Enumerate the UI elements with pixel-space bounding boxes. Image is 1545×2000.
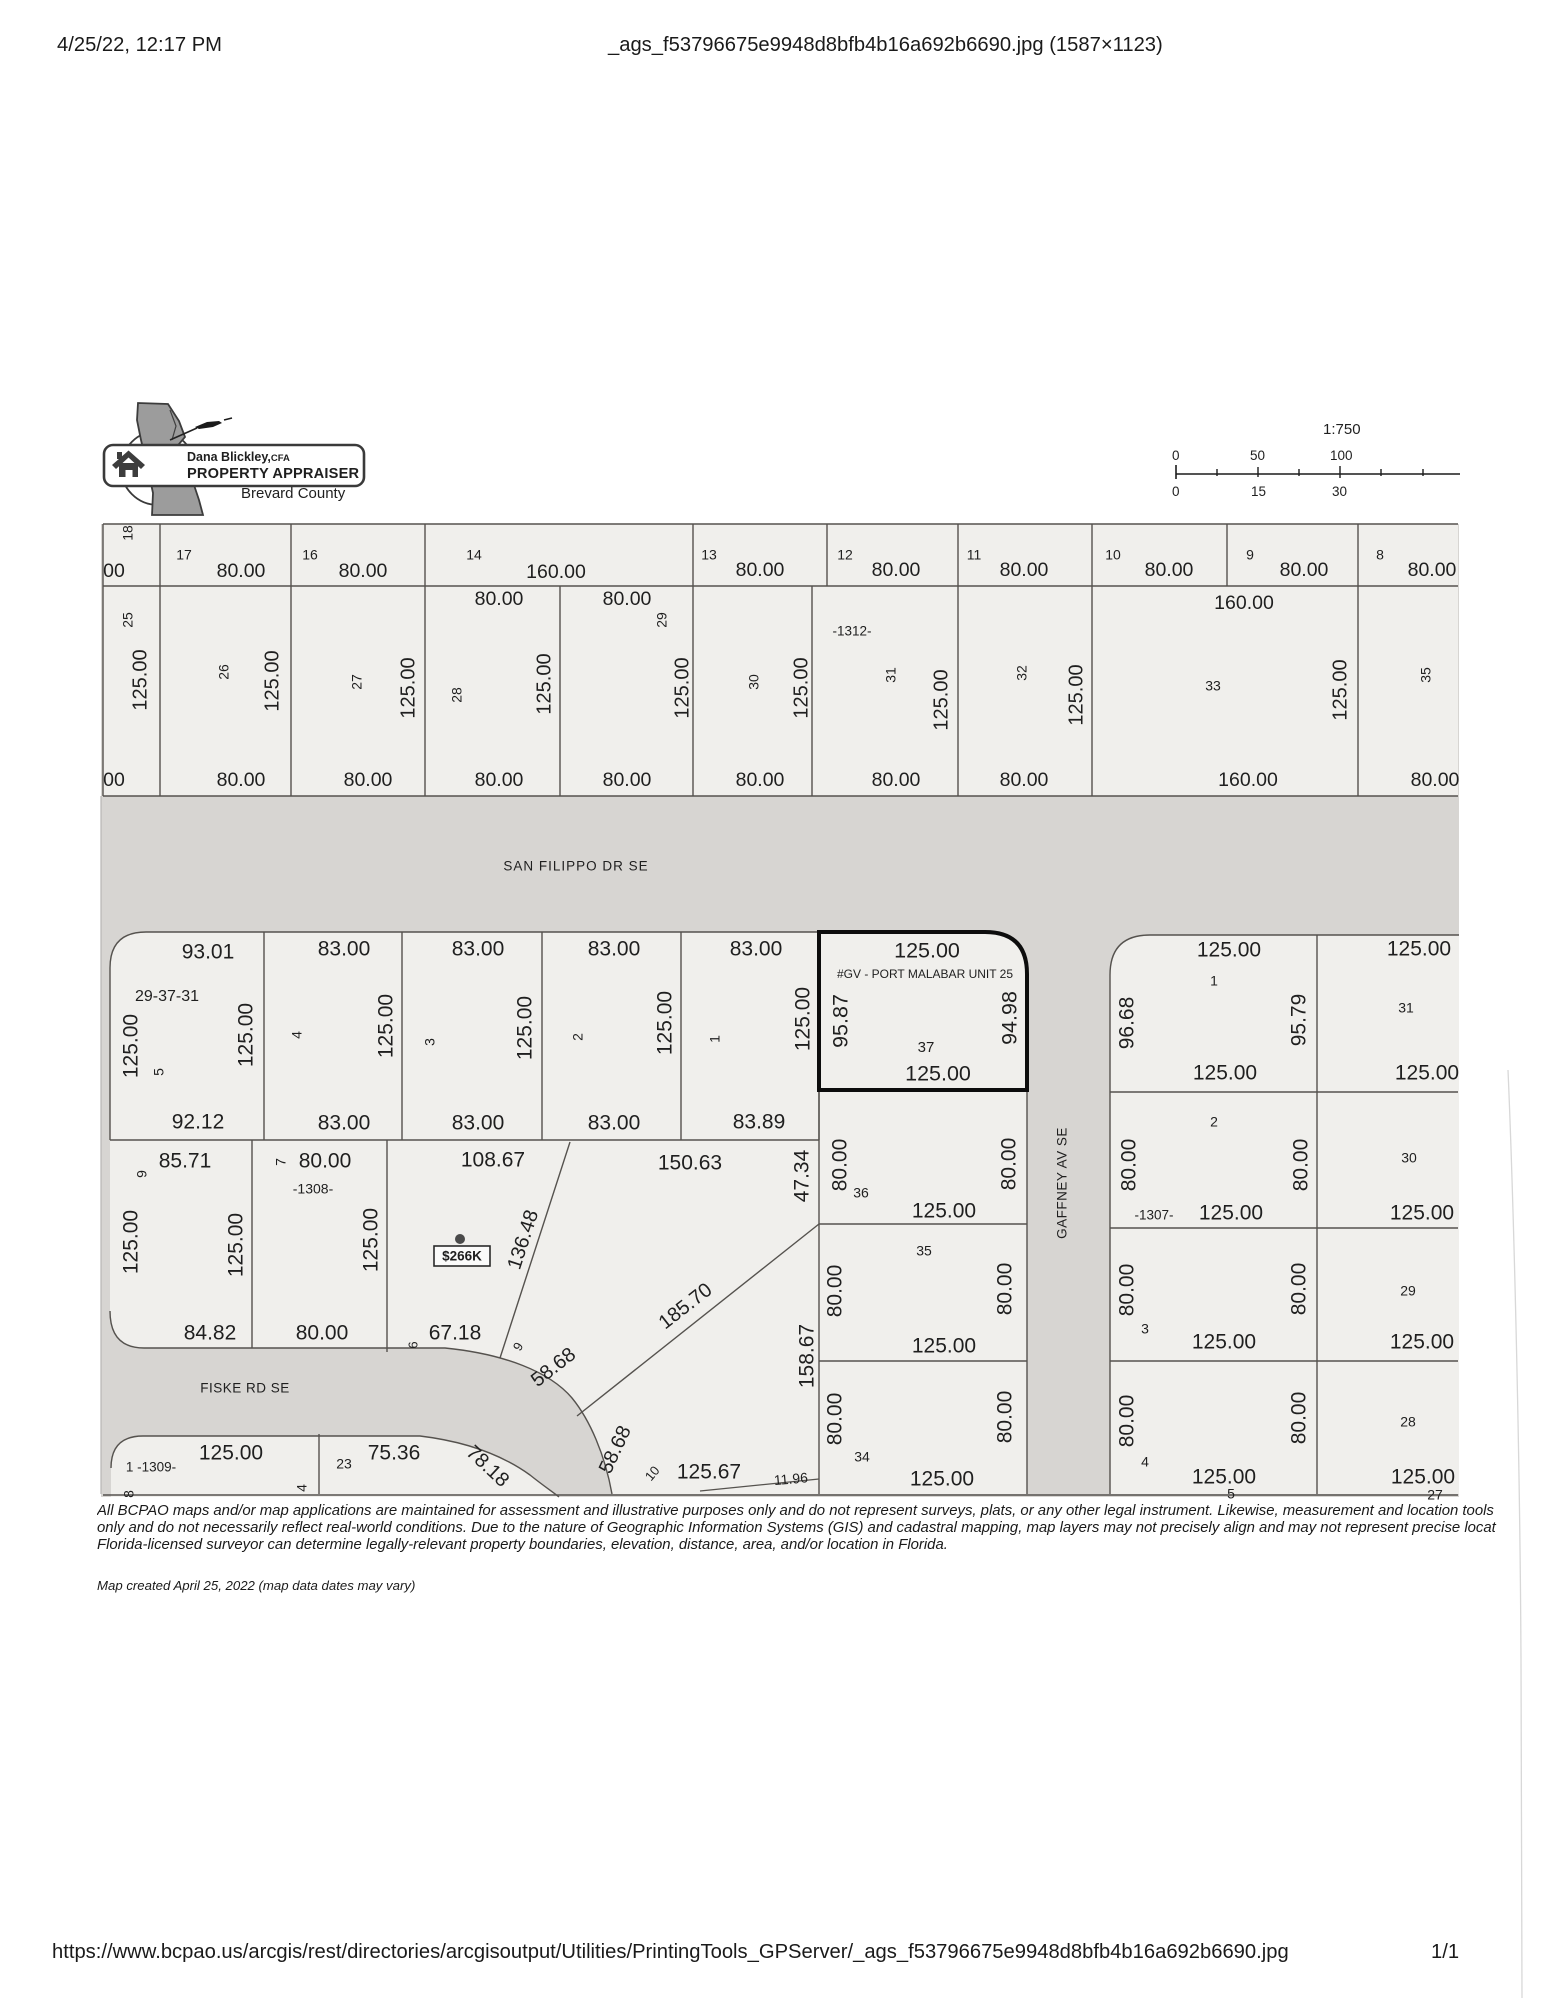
svg-text:108.67: 108.67 (461, 1149, 525, 1172)
svg-text:8: 8 (1376, 547, 1384, 563)
svg-text:125.00: 125.00 (1192, 1466, 1256, 1489)
svg-text:125.00: 125.00 (1395, 1062, 1459, 1085)
svg-text:15: 15 (1251, 484, 1266, 499)
svg-text:80.00: 80.00 (1116, 1264, 1139, 1317)
svg-text:125.00: 125.00 (397, 657, 419, 718)
svg-text:-1307-: -1307- (1134, 1208, 1173, 1223)
svg-text:7: 7 (273, 1158, 289, 1166)
svg-text:11: 11 (967, 547, 982, 563)
svg-text:80.00: 80.00 (296, 1322, 349, 1345)
svg-text:125.00: 125.00 (261, 650, 283, 711)
svg-text:125.00: 125.00 (533, 653, 555, 714)
svg-text:27: 27 (349, 674, 365, 690)
svg-text:125.00: 125.00 (905, 1062, 971, 1086)
svg-text:80.00: 80.00 (603, 769, 652, 791)
svg-text:47.34: 47.34 (791, 1149, 814, 1202)
svg-text:35: 35 (1418, 667, 1434, 683)
svg-text:00: 00 (103, 769, 125, 791)
svg-text:80.00: 80.00 (1288, 1392, 1311, 1445)
svg-text:95.79: 95.79 (1288, 994, 1311, 1047)
svg-text:125.00: 125.00 (1065, 664, 1087, 725)
svg-text:125.00: 125.00 (360, 1208, 383, 1272)
svg-text:158.67: 158.67 (796, 1324, 819, 1388)
svg-text:94.98: 94.98 (998, 991, 1022, 1045)
svg-text:80.00: 80.00 (339, 560, 388, 582)
svg-text:31: 31 (1398, 1000, 1414, 1016)
svg-text:29: 29 (1400, 1283, 1416, 1299)
svg-text:160.00: 160.00 (1214, 592, 1274, 614)
svg-text:8: 8 (121, 1490, 137, 1498)
svg-text:0: 0 (1172, 448, 1180, 463)
svg-text:125.00: 125.00 (199, 1442, 263, 1465)
svg-text:125.00: 125.00 (654, 991, 677, 1055)
svg-text:83.00: 83.00 (318, 938, 371, 961)
svg-text:125.00: 125.00 (930, 669, 952, 730)
svg-text:5: 5 (151, 1068, 167, 1076)
svg-text:125.67: 125.67 (677, 1461, 741, 1484)
svg-text:125.00: 125.00 (910, 1468, 974, 1491)
svg-text:80.00: 80.00 (998, 1138, 1021, 1191)
svg-text:29: 29 (654, 612, 670, 628)
svg-text:125.00: 125.00 (129, 649, 151, 710)
svg-text:80.00: 80.00 (299, 1150, 352, 1173)
svg-text:67.18: 67.18 (429, 1322, 482, 1345)
svg-text:35: 35 (916, 1243, 932, 1259)
svg-text:14: 14 (466, 547, 482, 563)
svg-text:13: 13 (701, 547, 717, 563)
svg-text:80.00: 80.00 (344, 769, 393, 791)
svg-text:31: 31 (883, 667, 899, 683)
svg-text:84.82: 84.82 (184, 1322, 237, 1345)
svg-text:4: 4 (289, 1031, 305, 1039)
svg-text:80.00: 80.00 (217, 560, 266, 582)
svg-text:80.00: 80.00 (736, 559, 785, 581)
svg-text:85.71: 85.71 (159, 1150, 212, 1173)
svg-text:125.00: 125.00 (912, 1200, 976, 1223)
svg-text:125.00: 125.00 (120, 1014, 143, 1078)
svg-text:160.00: 160.00 (526, 561, 586, 583)
svg-text:125.00: 125.00 (912, 1335, 976, 1358)
svg-text:Brevard County: Brevard County (241, 485, 346, 502)
svg-text:80.00: 80.00 (1000, 769, 1049, 791)
svg-text:16: 16 (302, 547, 318, 563)
svg-text:125.00: 125.00 (1192, 1331, 1256, 1354)
svg-text:80.00: 80.00 (1411, 769, 1460, 791)
svg-text:29-37-31: 29-37-31 (135, 988, 199, 1005)
svg-text:160.00: 160.00 (1218, 769, 1278, 791)
svg-text:00: 00 (103, 560, 125, 582)
svg-text:125.00: 125.00 (894, 939, 960, 963)
svg-text:83.89: 83.89 (733, 1111, 786, 1134)
svg-text:95.87: 95.87 (829, 994, 853, 1048)
svg-text:30: 30 (1401, 1150, 1417, 1166)
svg-text:80.00: 80.00 (1288, 1263, 1311, 1316)
svg-text:80.00: 80.00 (994, 1263, 1017, 1316)
svg-text:125.00: 125.00 (1329, 659, 1351, 720)
svg-text:9: 9 (134, 1170, 150, 1178)
svg-text:100: 100 (1330, 448, 1353, 463)
svg-text:80.00: 80.00 (1280, 559, 1329, 581)
svg-text:80.00: 80.00 (1408, 559, 1457, 581)
svg-text:80.00: 80.00 (824, 1393, 847, 1446)
svg-text:80.00: 80.00 (475, 588, 524, 610)
svg-text:#GV - PORT MALABAR UNIT 25: #GV - PORT MALABAR UNIT 25 (837, 967, 1013, 981)
svg-text:83.00: 83.00 (452, 1112, 505, 1135)
svg-text:83.00: 83.00 (730, 938, 783, 961)
svg-text:125.00: 125.00 (1387, 938, 1451, 961)
svg-text:125.00: 125.00 (120, 1210, 143, 1274)
svg-text:125.00: 125.00 (375, 994, 398, 1058)
svg-text:75.36: 75.36 (368, 1442, 421, 1465)
svg-text:125.00: 125.00 (1391, 1466, 1455, 1489)
svg-text:80.00: 80.00 (1290, 1139, 1313, 1192)
svg-text:80.00: 80.00 (217, 769, 266, 791)
svg-text:-1312-: -1312- (832, 624, 871, 639)
svg-text:32: 32 (1014, 665, 1030, 681)
svg-text:83.00: 83.00 (588, 938, 641, 961)
svg-text:30: 30 (1332, 484, 1347, 499)
svg-text:6: 6 (405, 1341, 420, 1348)
svg-text:125.00: 125.00 (1193, 1062, 1257, 1085)
svg-text:125.00: 125.00 (790, 657, 812, 718)
svg-text:80.00: 80.00 (872, 559, 921, 581)
svg-text:125.00: 125.00 (514, 996, 537, 1060)
svg-text:SAN FILIPPO DR SE: SAN FILIPPO DR SE (503, 859, 648, 874)
svg-text:150.63: 150.63 (658, 1152, 722, 1175)
svg-text:23: 23 (336, 1456, 352, 1472)
svg-text:27: 27 (1427, 1487, 1443, 1500)
svg-text:80.00: 80.00 (829, 1139, 852, 1192)
svg-text:93.01: 93.01 (182, 941, 235, 964)
svg-text:80.00: 80.00 (736, 769, 785, 791)
svg-text:30: 30 (746, 674, 762, 690)
svg-text:1: 1 (1210, 973, 1218, 989)
svg-text:80.00: 80.00 (1118, 1139, 1141, 1192)
svg-text:125.00: 125.00 (1197, 939, 1261, 962)
svg-text:3: 3 (422, 1038, 438, 1046)
svg-text:125.00: 125.00 (225, 1213, 248, 1277)
svg-text:25: 25 (120, 612, 136, 628)
svg-text:96.68: 96.68 (1116, 997, 1139, 1050)
svg-text:12: 12 (837, 547, 853, 563)
svg-text:80.00: 80.00 (475, 769, 524, 791)
svg-text:17: 17 (176, 547, 192, 563)
svg-text:36: 36 (853, 1185, 869, 1201)
svg-text:3: 3 (1141, 1321, 1149, 1337)
svg-text:GAFFNEY AV SE: GAFFNEY AV SE (1055, 1127, 1070, 1239)
svg-text:34: 34 (854, 1449, 870, 1465)
svg-text:-1308-: -1308- (293, 1181, 334, 1197)
svg-text:28: 28 (449, 687, 465, 703)
svg-text:2: 2 (570, 1033, 586, 1041)
svg-text:125.00: 125.00 (1390, 1331, 1454, 1354)
svg-text:80.00: 80.00 (1145, 559, 1194, 581)
svg-text:83.00: 83.00 (318, 1112, 371, 1135)
svg-text:26: 26 (216, 664, 232, 680)
svg-text:11.96: 11.96 (773, 1469, 808, 1488)
svg-text:FISKE RD SE: FISKE RD SE (200, 1381, 290, 1396)
svg-text:Dana Blickley,CFA: Dana Blickley,CFA (187, 450, 290, 464)
svg-text:2: 2 (1210, 1114, 1218, 1130)
svg-text:92.12: 92.12 (172, 1111, 225, 1134)
svg-text:0: 0 (1172, 484, 1180, 499)
svg-text:37: 37 (918, 1039, 935, 1056)
svg-text:4: 4 (1141, 1454, 1149, 1470)
svg-text:28: 28 (1400, 1414, 1416, 1430)
svg-text:80.00: 80.00 (872, 769, 921, 791)
svg-text:80.00: 80.00 (603, 588, 652, 610)
svg-text:83.00: 83.00 (588, 1112, 641, 1135)
svg-text:80.00: 80.00 (1000, 559, 1049, 581)
svg-text:83.00: 83.00 (452, 938, 505, 961)
svg-text:18: 18 (120, 525, 136, 541)
svg-text:125.00: 125.00 (671, 657, 693, 718)
svg-text:1: 1 (707, 1035, 723, 1043)
svg-text:125.00: 125.00 (235, 1003, 258, 1067)
svg-text:80.00: 80.00 (1116, 1395, 1139, 1448)
svg-text:125.00: 125.00 (1199, 1202, 1263, 1225)
svg-text:9: 9 (1246, 547, 1254, 563)
svg-text:80.00: 80.00 (824, 1265, 847, 1318)
svg-text:PROPERTY APPRAISER: PROPERTY APPRAISER (187, 466, 360, 482)
svg-text:33: 33 (1205, 678, 1221, 694)
svg-text:4: 4 (294, 1484, 310, 1492)
svg-text:125.00: 125.00 (792, 987, 815, 1051)
svg-text:1:750: 1:750 (1323, 421, 1361, 438)
svg-text:80.00: 80.00 (994, 1391, 1017, 1444)
svg-text:5: 5 (1227, 1486, 1235, 1500)
svg-text:$266K: $266K (442, 1249, 482, 1264)
svg-text:10: 10 (1105, 547, 1121, 563)
svg-text:125.00: 125.00 (1390, 1202, 1454, 1225)
svg-text:50: 50 (1250, 448, 1265, 463)
svg-text:1 -1309-: 1 -1309- (126, 1460, 176, 1475)
